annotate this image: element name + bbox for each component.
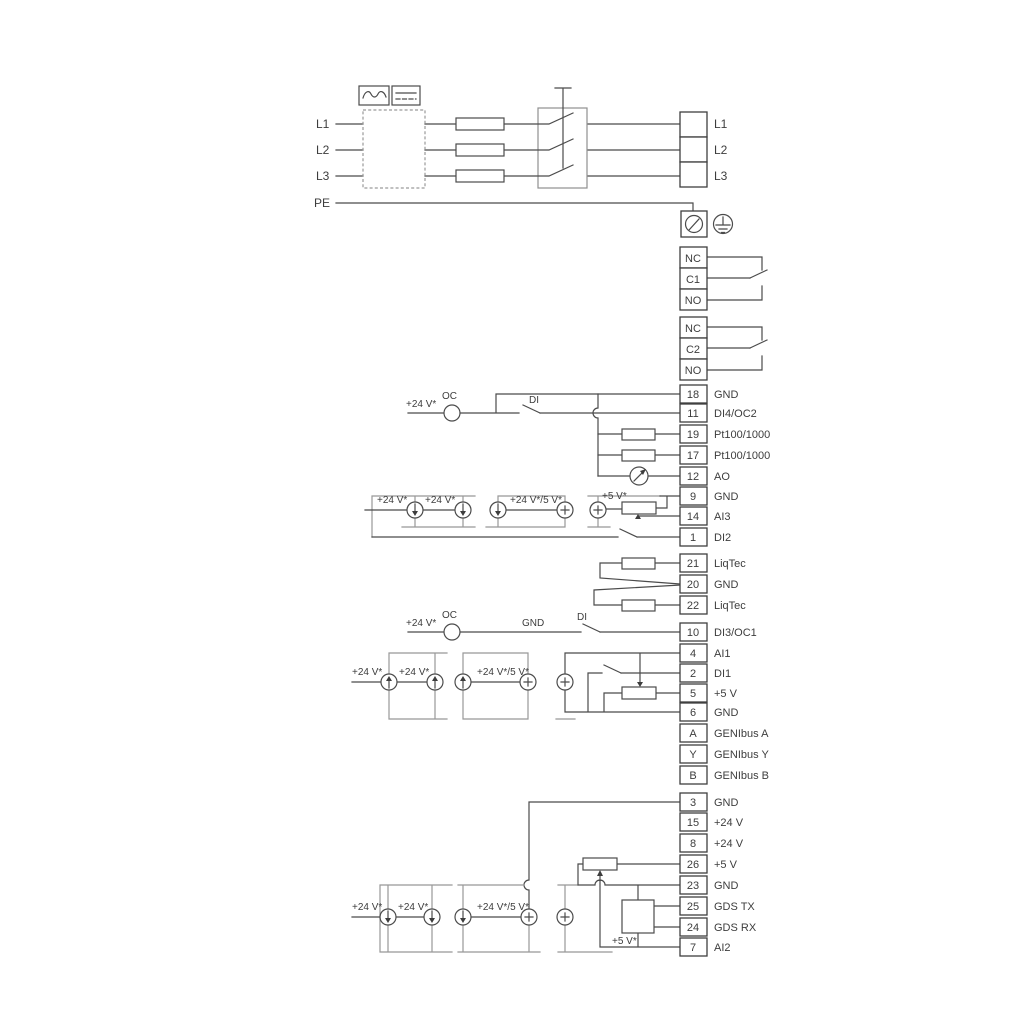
terminal-24-number: 24 — [687, 922, 699, 934]
annotation-24v: +24 V* — [406, 399, 436, 410]
ai2-rails — [380, 885, 612, 952]
annotation-5v: +5 V* — [612, 936, 637, 947]
relay2-nc-label: NC — [685, 323, 701, 335]
terminal-18-label: GND — [714, 389, 739, 401]
terminal-23-number: 23 — [687, 880, 699, 892]
terminal-8-number: 8 — [690, 838, 696, 850]
pe-terminal — [681, 211, 733, 237]
fuse-l2 — [456, 144, 504, 156]
comm-terminal-strip: 4 AI1 2 DI1 5 +5 V 6 GND A GENIbus A Y G… — [680, 644, 769, 784]
annotation-di: DI — [529, 395, 539, 406]
io-terminal-strip: 18 GND 11 DI4/OC2 19 Pt100/1000 17 Pt100… — [680, 385, 770, 546]
terminal-7-number: 7 — [690, 942, 696, 954]
gnd3-wire — [524, 802, 680, 909]
terminal-21-number: 21 — [687, 558, 699, 570]
bottom-terminal-strip: 3 GND 15 +24 V 8 +24 V 26 +5 V 23 GND 25… — [680, 793, 757, 956]
di2-switch-blade — [620, 529, 637, 537]
pot-wiper-arrow — [637, 682, 643, 687]
annotation-oc: OC — [442, 610, 457, 621]
relay1-no-label: NO — [685, 295, 702, 307]
annotation-24v: +24 V* — [399, 667, 429, 678]
ai3-sensor-group: +24 V* +24 V* +24 V*/5 V* +5 V* — [365, 491, 680, 537]
mains-wires — [336, 124, 693, 211]
di3-switch-blade — [583, 624, 600, 632]
pt100-resistor-2 — [622, 450, 655, 461]
terminal-8-label: +24 V — [714, 838, 744, 850]
di1-switch-blade — [604, 665, 621, 673]
sensor-bus-vertical — [593, 394, 598, 476]
terminal-25-number: 25 — [687, 901, 699, 913]
terminal-y-number: Y — [689, 749, 697, 761]
terminal-b-label: GENIbus B — [714, 770, 769, 782]
annotation-5v: +5 V* — [602, 491, 627, 502]
annotation-di: DI — [577, 612, 587, 623]
terminal-2-number: 2 — [690, 668, 696, 680]
terminal-l2-label: L2 — [714, 143, 728, 157]
annotation-24v-5v: +24 V*/5 V* — [510, 495, 562, 506]
relay2-switch-blade — [750, 340, 767, 348]
terminal-6-label: GND — [714, 707, 739, 719]
terminal-19-number: 19 — [687, 429, 699, 441]
potentiometer — [583, 858, 617, 870]
ai1-sensor-group: +24 V* +24 V* +24 V*/5 V* — [352, 653, 680, 719]
wiring-diagram: L1 L2 L3 PE L1 L2 L3 — [0, 0, 1024, 1024]
terminal-a-number: A — [689, 728, 697, 740]
terminal-20-label: GND — [714, 579, 739, 591]
terminal-10-number: 10 — [687, 627, 699, 639]
terminal-2-label: DI1 — [714, 668, 731, 680]
terminal-l3-label: L3 — [714, 169, 728, 183]
annotation-24v: +24 V* — [406, 618, 436, 629]
pot-wiper-arrow — [597, 870, 603, 876]
terminal-9-number: 9 — [690, 491, 696, 503]
terminal-17-number: 17 — [687, 450, 699, 462]
terminal-12-label: AO — [714, 471, 730, 483]
main-disconnect-switch — [538, 88, 587, 188]
terminal-3-number: 3 — [690, 797, 696, 809]
terminal-1-number: 1 — [690, 532, 696, 544]
relay2-block: NC C2 NO — [680, 317, 767, 380]
terminal-y-label: GENIbus Y — [714, 749, 769, 761]
terminal-22-number: 22 — [687, 600, 699, 612]
annotation-24v: +24 V* — [425, 495, 455, 506]
relay1-block: NC C1 NO — [680, 247, 767, 310]
dc-symbol-box — [392, 86, 420, 105]
terminal-3-label: GND — [714, 797, 739, 809]
ai1-wires — [352, 653, 680, 712]
rectifier-box — [363, 110, 425, 188]
terminal-18-number: 18 — [687, 389, 699, 401]
terminal-12-number: 12 — [687, 471, 699, 483]
wiring-diagram-page: L1 L2 L3 PE L1 L2 L3 — [0, 0, 1024, 1024]
annotation-24v: +24 V* — [352, 667, 382, 678]
terminal-25-label: GDS TX — [714, 901, 755, 913]
liqtec-resistor-1 — [622, 558, 655, 569]
mains-l1-label: L1 — [316, 117, 330, 131]
relay1-wires — [707, 257, 762, 300]
annotation-24v-5v: +24 V*/5 V* — [477, 902, 529, 913]
terminal-23-label: GND — [714, 880, 739, 892]
terminal-9-label: GND — [714, 491, 739, 503]
mains-terminal-block: L1 L2 L3 — [680, 112, 728, 187]
terminal-l1-label: L1 — [714, 117, 728, 131]
terminal-6-number: 6 — [690, 707, 696, 719]
terminal-5-number: 5 — [690, 688, 696, 700]
fuse-l1 — [456, 118, 504, 130]
liqtec-section: 21 LiqTec 20 GND 22 LiqTec — [594, 554, 746, 614]
terminal-14-label: AI3 — [714, 511, 731, 523]
terminal-l2-cell — [680, 137, 707, 162]
terminal-26-number: 26 — [687, 859, 699, 871]
relay1-switch-blade — [750, 270, 767, 278]
annotation-oc: OC — [442, 391, 457, 402]
terminal-14-number: 14 — [687, 511, 699, 523]
terminal-l1-cell — [680, 112, 707, 137]
terminal-11-label: DI4/OC2 — [714, 408, 757, 420]
annotation-24v-5v: +24 V*/5 V* — [477, 667, 529, 678]
terminal-a-label: GENIbus A — [714, 728, 769, 740]
relay1-c1-label: C1 — [686, 274, 700, 286]
oc-output-circle — [444, 405, 460, 421]
relay2-c2-label: C2 — [686, 344, 700, 356]
terminal-26-label: +5 V — [714, 859, 738, 871]
annotation-24v: +24 V* — [398, 902, 428, 913]
terminal-4-number: 4 — [690, 648, 696, 660]
annotation-24v: +24 V* — [377, 495, 407, 506]
terminal-20-number: 20 — [687, 579, 699, 591]
io-strip-wiring: +24 V* OC DI — [406, 391, 680, 485]
mains-pe-label: PE — [314, 196, 330, 210]
terminal-10-label: DI3/OC1 — [714, 627, 757, 639]
relay2-no-label: NO — [685, 365, 702, 377]
terminal-17-label: Pt100/1000 — [714, 450, 770, 462]
annotation-gnd: GND — [522, 618, 544, 629]
terminal-22-label: LiqTec — [714, 600, 746, 612]
terminal-4-label: AI1 — [714, 648, 731, 660]
terminal-15-number: 15 — [687, 817, 699, 829]
gds-sensor-box — [622, 900, 654, 933]
terminal-b-number: B — [689, 770, 696, 782]
terminal-24-label: GDS RX — [714, 922, 757, 934]
oc-output-circle — [444, 624, 460, 640]
di4-switch-blade — [523, 405, 540, 413]
pt100-resistor-1 — [622, 429, 655, 440]
potentiometer — [622, 687, 656, 699]
mains-l3-label: L3 — [316, 169, 330, 183]
liqtec-resistor-2 — [622, 600, 655, 611]
mains-l2-label: L2 — [316, 143, 330, 157]
terminal-15-label: +24 V — [714, 817, 744, 829]
terminal-19-label: Pt100/1000 — [714, 429, 770, 441]
terminal-7-label: AI2 — [714, 942, 731, 954]
gds-ai2-section: +5 V* +24 V* +24 V* +24 V*/5 V* — [352, 802, 680, 952]
terminal-l3-cell — [680, 162, 707, 187]
terminal-5-label: +5 V — [714, 688, 738, 700]
ai1-rails — [389, 653, 575, 719]
terminal-21-label: LiqTec — [714, 558, 746, 570]
potentiometer — [622, 502, 656, 514]
terminal-11-number: 11 — [687, 408, 698, 420]
terminal-1-label: DI2 — [714, 532, 731, 544]
mains-power-section: L1 L2 L3 PE L1 L2 L3 — [314, 86, 733, 237]
annotation-24v: +24 V* — [352, 902, 382, 913]
di3-row: +24 V* OC GND DI 10 DI3/OC1 — [406, 610, 757, 641]
relay2-wires — [707, 327, 762, 370]
relay1-nc-label: NC — [685, 253, 701, 265]
fuse-l3 — [456, 170, 504, 182]
